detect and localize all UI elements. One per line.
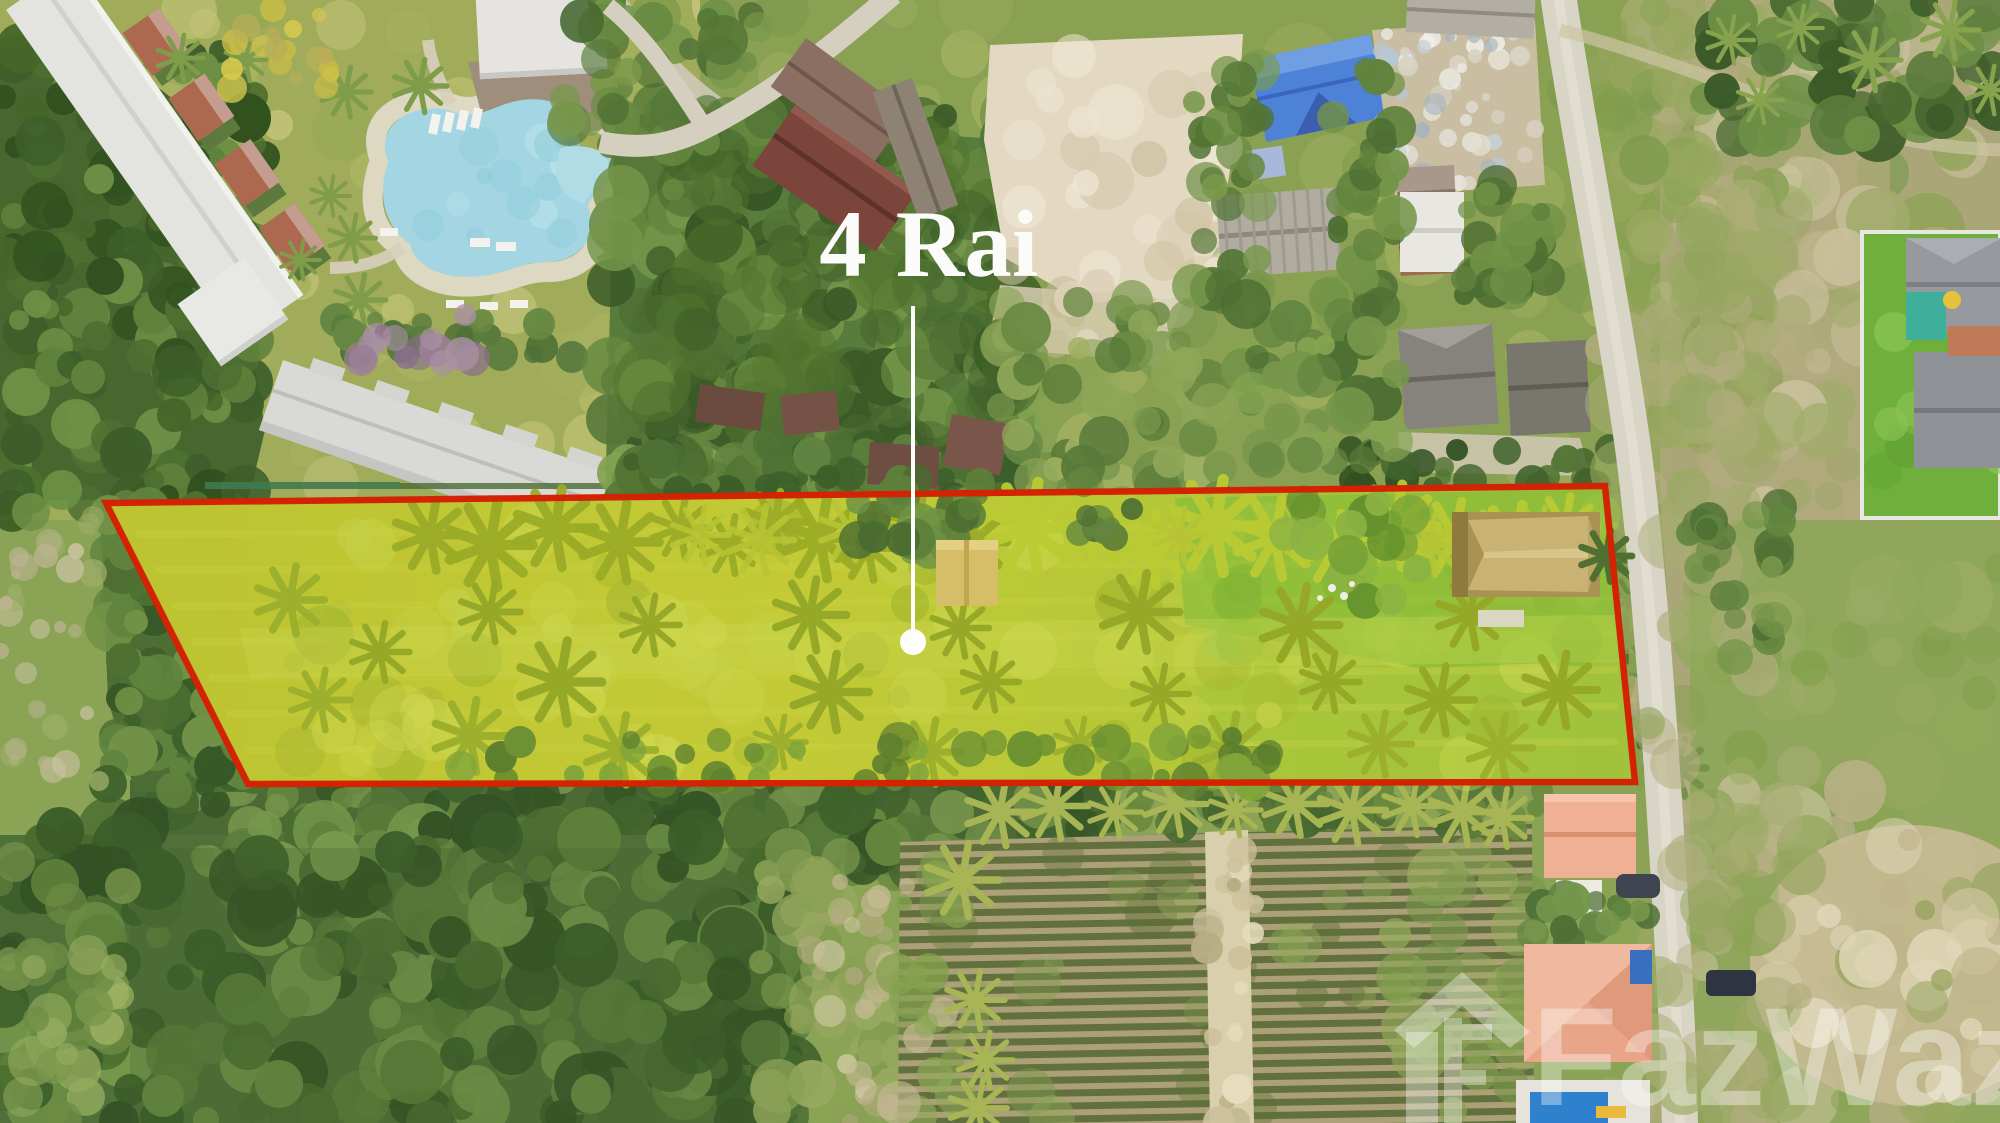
svg-text:Rai: Rai [896,191,1039,297]
svg-text:4: 4 [819,191,867,297]
svg-text:FazWaz: FazWaz [1532,978,2000,1123]
